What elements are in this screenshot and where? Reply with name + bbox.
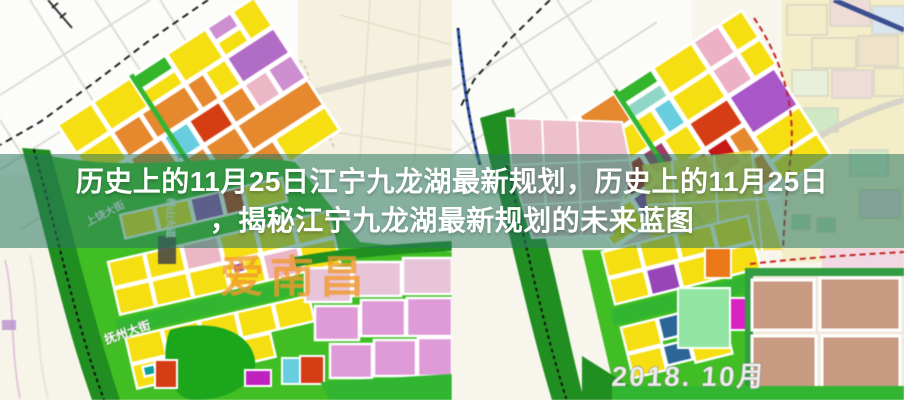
tan-zone-green-top [747, 268, 904, 276]
light-green-block [678, 288, 730, 348]
pink-strip [822, 248, 904, 270]
orange-block [705, 248, 731, 278]
date-stamp: 2018. 10月 [611, 361, 768, 392]
thumbnail-image: 杨山大道 上饶大街 抚州大街 爱南昌 [0, 0, 904, 400]
title-banner: 历史上的11月25日江宁九龙湖最新规划，历史上的11月25日 ，揭秘江宁九龙湖最… [0, 154, 904, 248]
title-line-1: 历史上的11月25日江宁九龙湖最新规划，历史上的11月25日 [76, 162, 829, 201]
title-line-2: ，揭秘江宁九龙湖最新规划的未来蓝图 [210, 201, 695, 240]
small-purple-block [2, 320, 16, 330]
watermark-text: 爱南昌 [220, 253, 370, 302]
